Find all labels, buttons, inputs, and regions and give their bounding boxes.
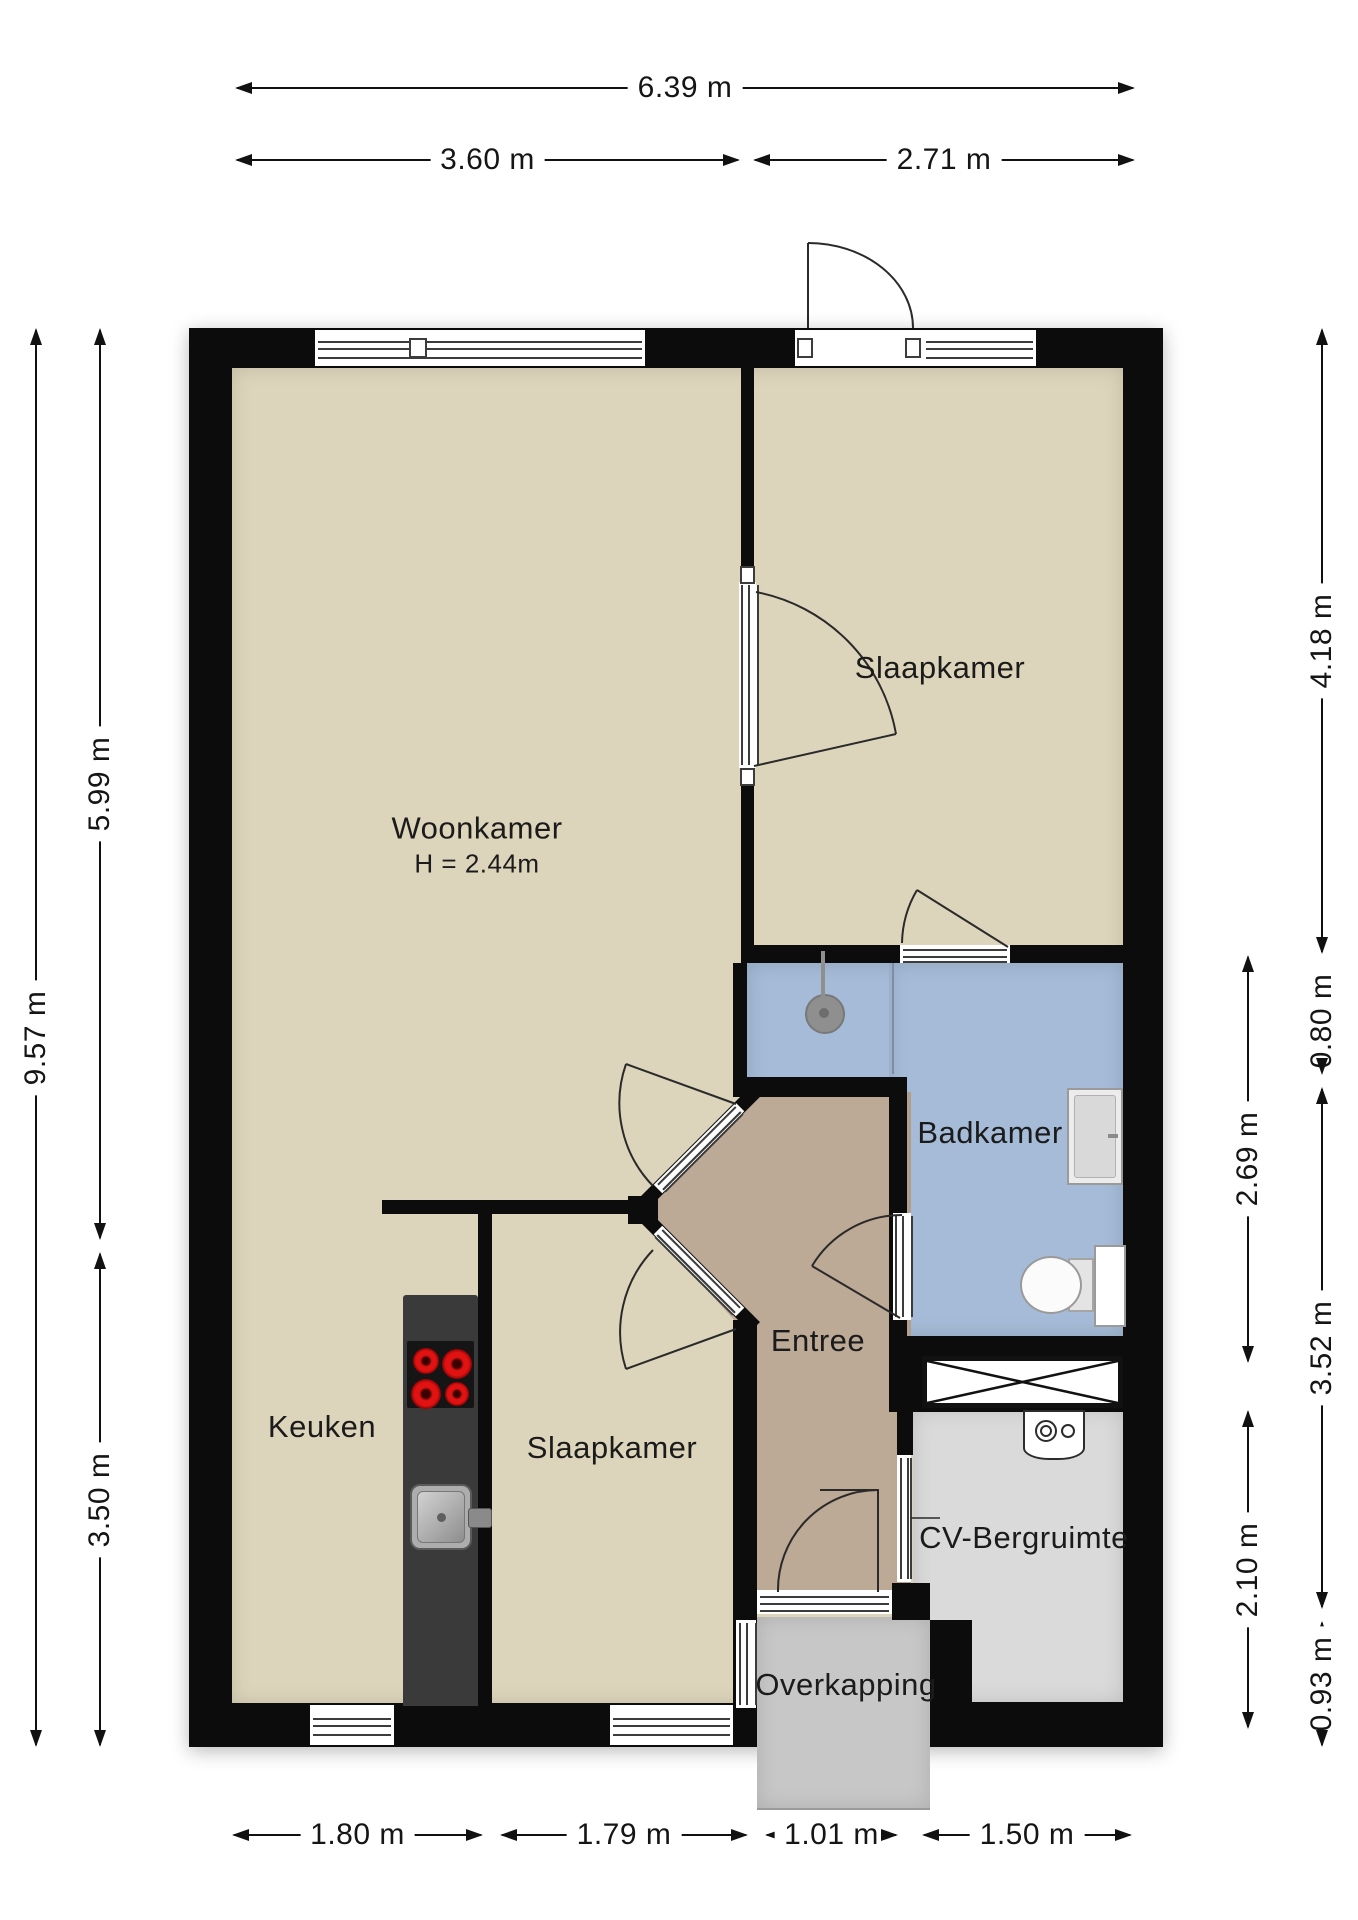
window-overkapping-side xyxy=(736,1620,756,1708)
dim-right-outer-mid: 3.52 m xyxy=(1310,1087,1334,1609)
shower-icon xyxy=(805,994,845,1034)
wall-cv-left-upper xyxy=(897,1412,913,1455)
window-keuken-bottom xyxy=(310,1705,394,1745)
dim-bottom-2: 1.79 m xyxy=(500,1823,748,1847)
window-woonkamer-top xyxy=(315,330,645,366)
dim-left-total: 9.57 m xyxy=(24,328,48,1747)
shaft-cross-icon xyxy=(922,1356,1123,1408)
wall-shower-bottom xyxy=(733,1077,907,1097)
door-woonkamer-slaapkamer xyxy=(739,582,756,768)
door-slaapkamer-badkamer xyxy=(900,945,1010,963)
window-slaapkamer-top xyxy=(923,330,1036,366)
room-label-keuken: Keuken xyxy=(268,1409,376,1445)
area-overkapping xyxy=(757,1617,930,1810)
dim-bottom-1: 1.80 m xyxy=(232,1823,483,1847)
wall-keuken-horizontal xyxy=(382,1200,640,1214)
wall-shower-left xyxy=(733,963,747,1077)
wall-keuken-vertical xyxy=(478,1213,492,1703)
door-post xyxy=(740,566,755,584)
dim-right-outer-small: 0.80 m xyxy=(1310,966,1334,1075)
dim-right-outer-bottom: 0.93 m xyxy=(1310,1621,1334,1747)
room-label-badkamer: Badkamer xyxy=(917,1115,1062,1151)
room-label-slaapkamer-top: Slaapkamer xyxy=(855,650,1025,686)
floorplan-canvas: Woonkamer H = 2.44m Slaapkamer Badkamer … xyxy=(0,0,1358,1920)
door-entree-front xyxy=(757,1590,892,1614)
dim-left-upper: 5.99 m xyxy=(88,328,112,1240)
wall-exterior-right xyxy=(1123,328,1163,1747)
door-entree-cv xyxy=(897,1455,911,1582)
door-post xyxy=(740,768,755,786)
cooktop-icon xyxy=(407,1341,474,1408)
room-label-slaapkamer-bottom: Slaapkamer xyxy=(527,1430,697,1466)
room-label-cv-bergruimte: CV-Bergruimte xyxy=(919,1520,1129,1556)
washbasin-icon xyxy=(1067,1088,1123,1185)
sink-icon xyxy=(410,1484,472,1550)
room-label-woonkamer-height: H = 2.44m xyxy=(391,849,562,880)
dim-bottom-4: 1.50 m xyxy=(922,1823,1132,1847)
wall-exterior-left xyxy=(189,328,232,1747)
dim-bottom-3: 1.01 m xyxy=(765,1823,898,1847)
window-slaapkamer-bottom xyxy=(610,1705,733,1745)
wall-cv-left-corner xyxy=(892,1583,930,1620)
door-entree-badkamer xyxy=(893,1213,911,1320)
dim-top-right: 2.71 m xyxy=(753,148,1135,172)
door-opening-front-top xyxy=(795,330,923,366)
dim-left-lower: 3.50 m xyxy=(88,1252,112,1747)
room-label-overkapping: Overkapping xyxy=(755,1667,936,1703)
boiler-icon xyxy=(1023,1410,1085,1460)
wall-badkamer-bottom xyxy=(889,1336,1163,1356)
room-label-woonkamer-text: Woonkamer xyxy=(391,811,562,846)
dim-top-left: 3.60 m xyxy=(235,148,740,172)
dim-right-outer-upper: 4.18 m xyxy=(1310,328,1334,954)
dim-top-total: 6.39 m xyxy=(235,76,1135,100)
room-label-entree: Entree xyxy=(771,1323,865,1359)
toilet-icon xyxy=(1020,1240,1126,1332)
room-label-woonkamer: Woonkamer H = 2.44m xyxy=(391,811,562,880)
door-arc-front-top xyxy=(808,243,913,328)
dim-right-inner-upper: 2.69 m xyxy=(1236,955,1260,1363)
dim-right-inner-lower: 2.10 m xyxy=(1236,1410,1260,1729)
